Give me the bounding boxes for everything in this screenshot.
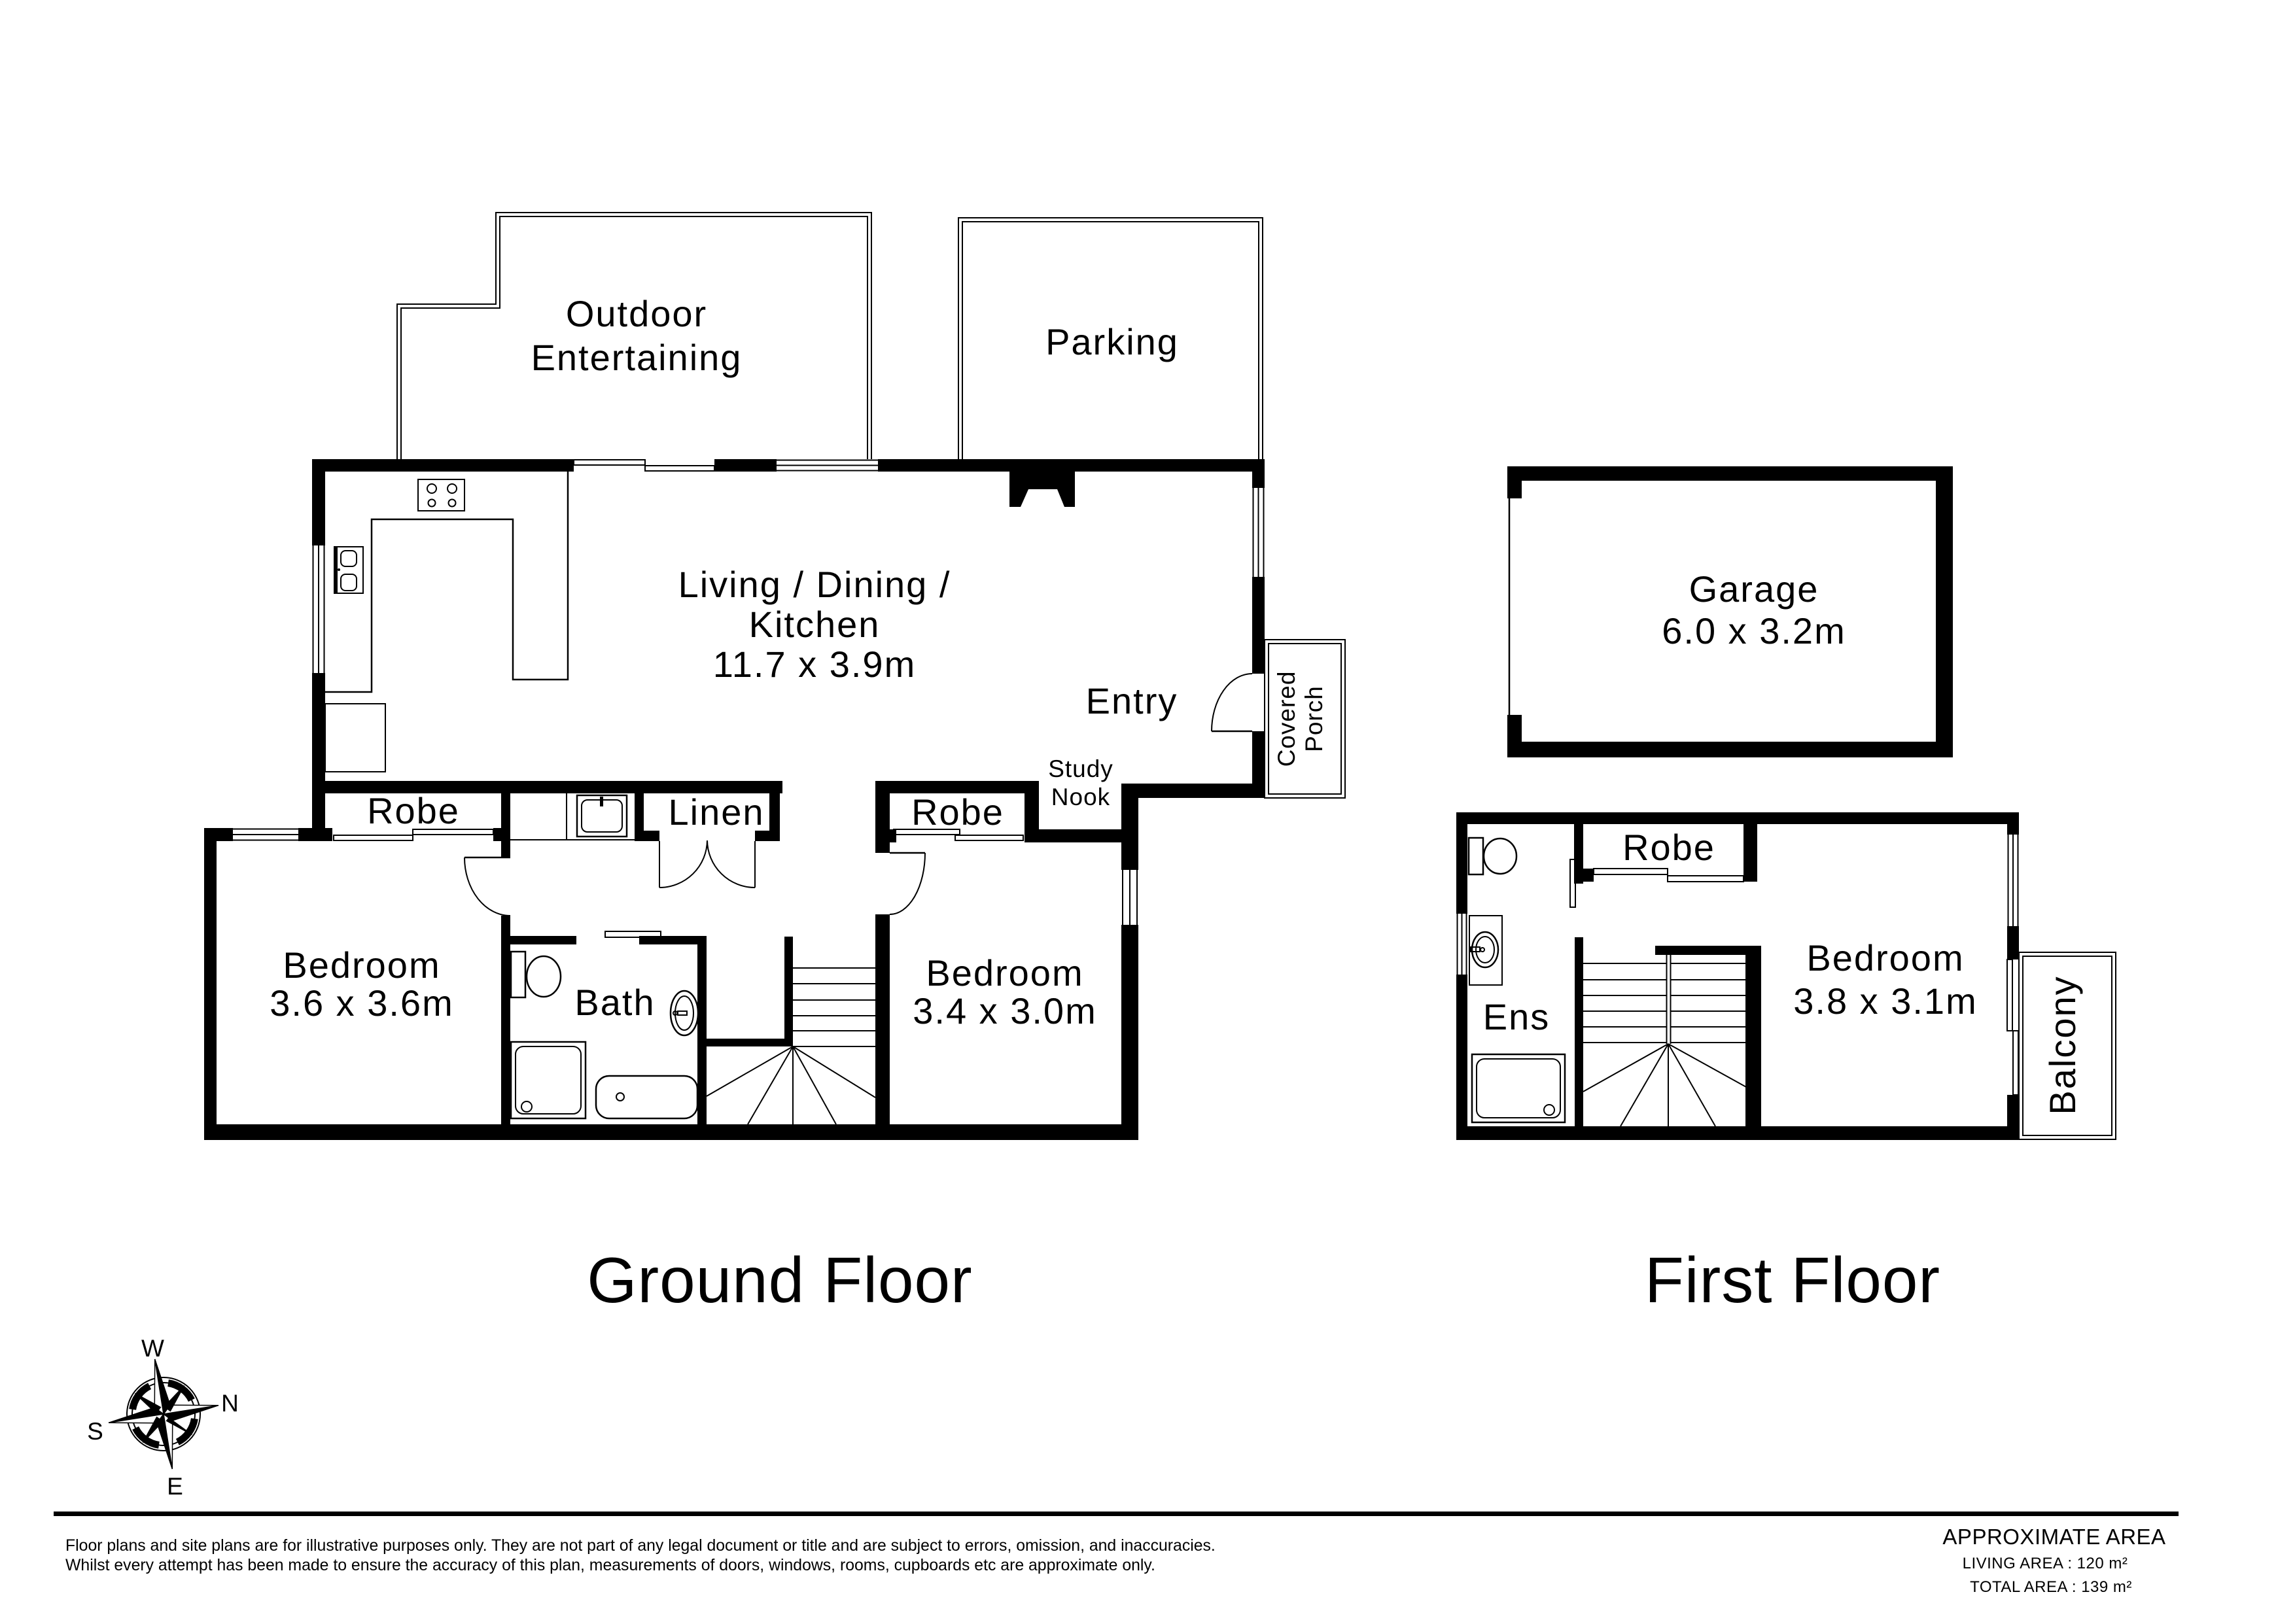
- svg-text:3.4 x 3.0m: 3.4 x 3.0m: [913, 990, 1096, 1031]
- svg-text:APPROXIMATE AREA: APPROXIMATE AREA: [1942, 1525, 2165, 1549]
- svg-text:Robe: Robe: [911, 791, 1004, 833]
- svg-text:Study: Study: [1048, 755, 1113, 782]
- svg-text:Bedroom: Bedroom: [926, 952, 1083, 993]
- svg-text:Whilst every attempt has been: Whilst every attempt has been made to en…: [65, 1557, 1155, 1574]
- svg-text:Bath: Bath: [574, 982, 655, 1023]
- svg-text:Bedroom: Bedroom: [283, 944, 440, 986]
- svg-text:Nook: Nook: [1051, 784, 1110, 810]
- svg-text:11.7 x 3.9m: 11.7 x 3.9m: [713, 644, 916, 685]
- svg-text:Ens: Ens: [1483, 996, 1550, 1037]
- svg-text:Robe: Robe: [367, 790, 460, 831]
- svg-text:E: E: [167, 1473, 184, 1500]
- svg-text:N: N: [221, 1390, 239, 1417]
- svg-text:Outdoor: Outdoor: [566, 293, 707, 334]
- svg-text:First Floor: First Floor: [1645, 1244, 1940, 1316]
- svg-text:Balcony: Balcony: [2042, 975, 2083, 1114]
- svg-text:Bedroom: Bedroom: [1806, 937, 1964, 978]
- svg-text:Porch: Porch: [1301, 685, 1327, 752]
- svg-text:Floor plans and site plans are: Floor plans and site plans are for illus…: [65, 1537, 1216, 1555]
- svg-text:6.0 x 3.2m: 6.0 x 3.2m: [1662, 610, 1846, 651]
- svg-text:W: W: [141, 1335, 165, 1362]
- svg-text:S: S: [87, 1418, 104, 1445]
- svg-text:Covered: Covered: [1273, 671, 1300, 767]
- svg-text:Entry: Entry: [1086, 680, 1178, 721]
- svg-text:LIVING AREA : 120 m²: LIVING AREA : 120 m²: [1963, 1555, 2128, 1572]
- svg-text:Living / Dining /: Living / Dining /: [678, 564, 951, 605]
- svg-text:Garage: Garage: [1689, 568, 1819, 610]
- svg-text:Linen: Linen: [668, 791, 764, 833]
- svg-text:3.8 x 3.1m: 3.8 x 3.1m: [1793, 980, 1977, 1022]
- svg-text:Parking: Parking: [1045, 321, 1179, 362]
- svg-text:Kitchen: Kitchen: [749, 604, 881, 645]
- svg-text:Entertaining: Entertaining: [531, 337, 743, 378]
- svg-text:Ground Floor: Ground Floor: [587, 1244, 972, 1316]
- svg-text:TOTAL AREA : 139 m²: TOTAL AREA : 139 m²: [1970, 1578, 2132, 1596]
- svg-text:Robe: Robe: [1622, 827, 1715, 868]
- svg-text:3.6 x 3.6m: 3.6 x 3.6m: [270, 982, 453, 1024]
